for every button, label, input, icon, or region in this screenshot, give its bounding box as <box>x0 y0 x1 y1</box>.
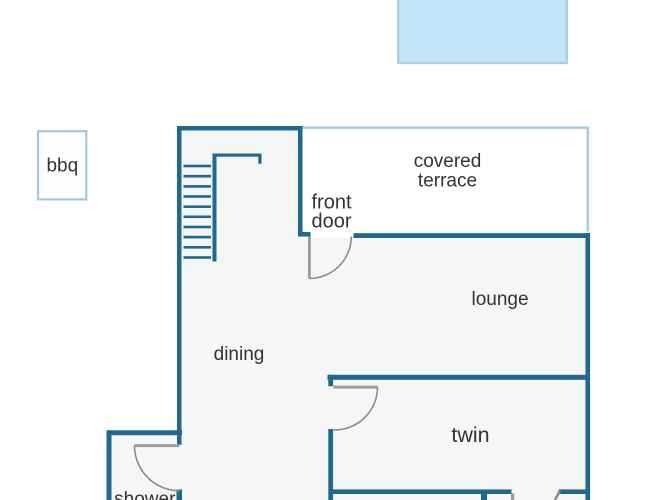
svg-text:door: door <box>311 211 351 233</box>
svg-text:dining: dining <box>214 344 265 365</box>
svg-text:lounge: lounge <box>471 289 528 310</box>
svg-text:covered: covered <box>414 151 482 172</box>
svg-text:terrace: terrace <box>418 171 477 192</box>
svg-text:twin: twin <box>451 423 489 447</box>
svg-text:shower: shower <box>114 489 176 500</box>
svg-text:bbq: bbq <box>46 156 78 177</box>
